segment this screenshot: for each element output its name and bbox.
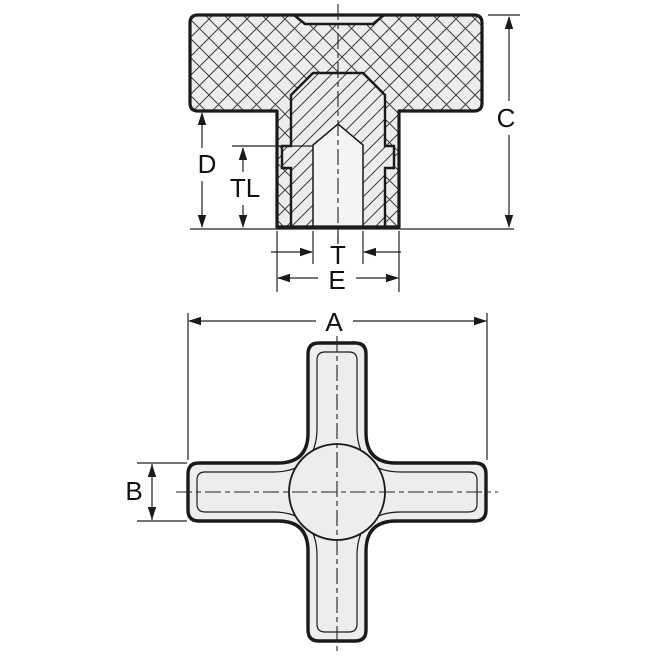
dim-d-arrow-up — [198, 112, 206, 125]
drawing-canvas: C D TL T — [0, 0, 670, 670]
plan-view: A B — [125, 307, 498, 653]
dim-label-c: C — [497, 103, 516, 133]
dim-t-arrow-right — [300, 248, 313, 256]
dim-c-arrow-down — [505, 215, 513, 228]
knob-technical-drawing: C D TL T — [0, 0, 670, 670]
dim-a-arrow-left — [188, 317, 201, 325]
dim-d-arrow-down — [198, 215, 206, 228]
dim-tl-arrow-up — [239, 147, 247, 160]
dim-label-d: D — [198, 149, 217, 179]
dim-label-e: E — [328, 265, 345, 295]
dim-e-arrow-right — [386, 274, 399, 282]
dim-b-arrow-up — [148, 464, 156, 477]
dim-e-arrow-left — [277, 274, 290, 282]
dim-a-arrow-right — [474, 317, 487, 325]
dim-t-arrow-left — [363, 248, 376, 256]
dim-label-b: B — [125, 476, 142, 506]
dim-b-arrow-down — [148, 507, 156, 520]
dim-tl-arrow-down — [239, 215, 247, 228]
section-view: C D TL T — [190, 4, 520, 295]
dim-label-a: A — [325, 307, 343, 337]
dim-c-arrow-up — [505, 16, 513, 29]
dim-label-tl: TL — [230, 173, 260, 203]
